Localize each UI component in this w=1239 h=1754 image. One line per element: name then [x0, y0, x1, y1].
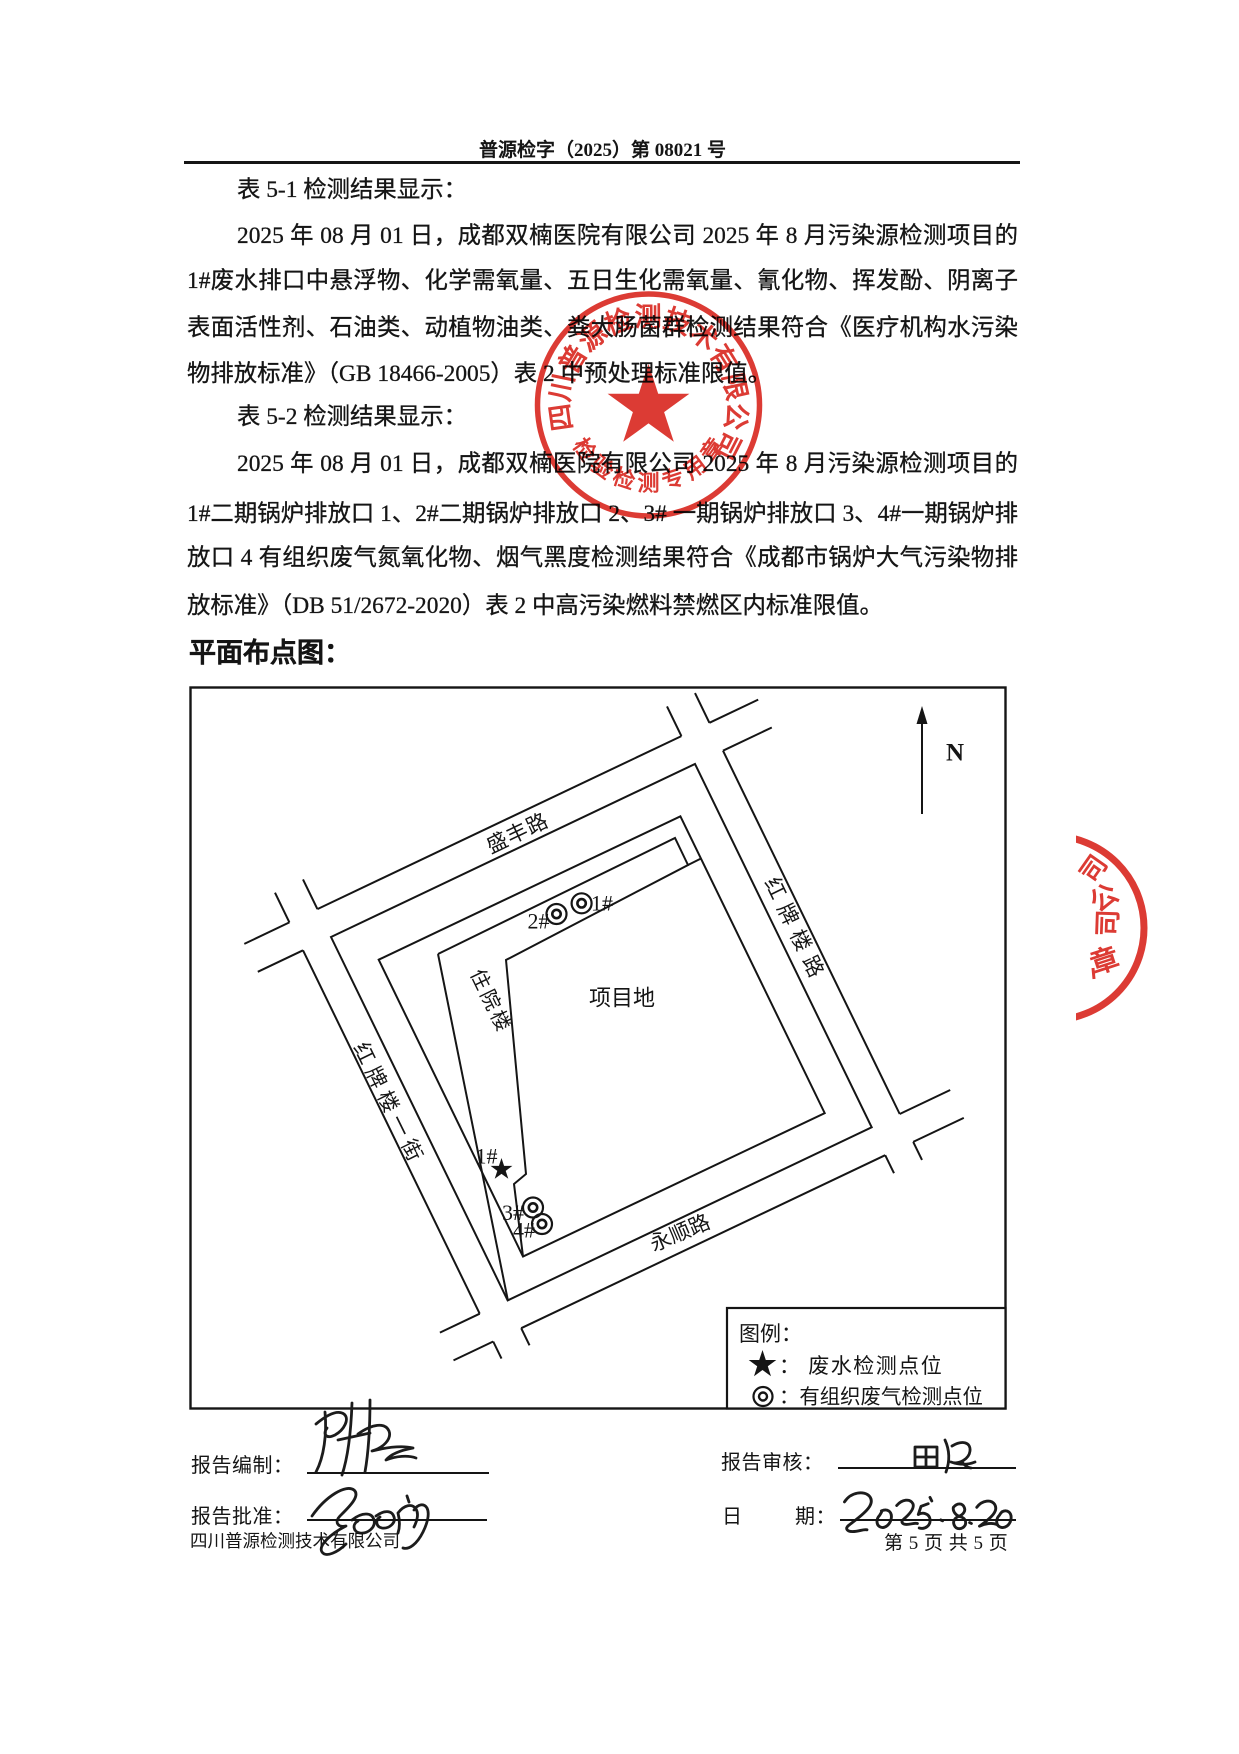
- svg-text:住院楼: 住院楼: [465, 965, 516, 1037]
- svg-text:盛丰路: 盛丰路: [483, 808, 553, 858]
- svg-text:章: 章: [1086, 941, 1123, 981]
- svg-text:测: 测: [635, 302, 662, 332]
- svg-text:限: 限: [717, 370, 752, 403]
- svg-text:1#: 1#: [591, 891, 613, 916]
- svg-text:： 废水检测点位: ： 废水检测点位: [779, 1354, 943, 1378]
- svg-text:四: 四: [545, 402, 578, 433]
- svg-text:2#: 2#: [528, 909, 550, 934]
- svg-text:司: 司: [1093, 909, 1124, 937]
- svg-text:永顺路: 永顺路: [646, 1210, 713, 1257]
- svg-text:1#: 1#: [476, 1144, 498, 1169]
- svg-text:N: N: [946, 740, 964, 767]
- svg-text:：有组织废气检测点位: ：有组织废气检测点位: [779, 1386, 983, 1409]
- svg-text:项目地: 项目地: [589, 986, 655, 1011]
- svg-text:公: 公: [719, 401, 752, 432]
- svg-text:测: 测: [637, 471, 659, 496]
- svg-text:图例：: 图例：: [739, 1322, 802, 1346]
- svg-text:4#: 4#: [513, 1218, 535, 1243]
